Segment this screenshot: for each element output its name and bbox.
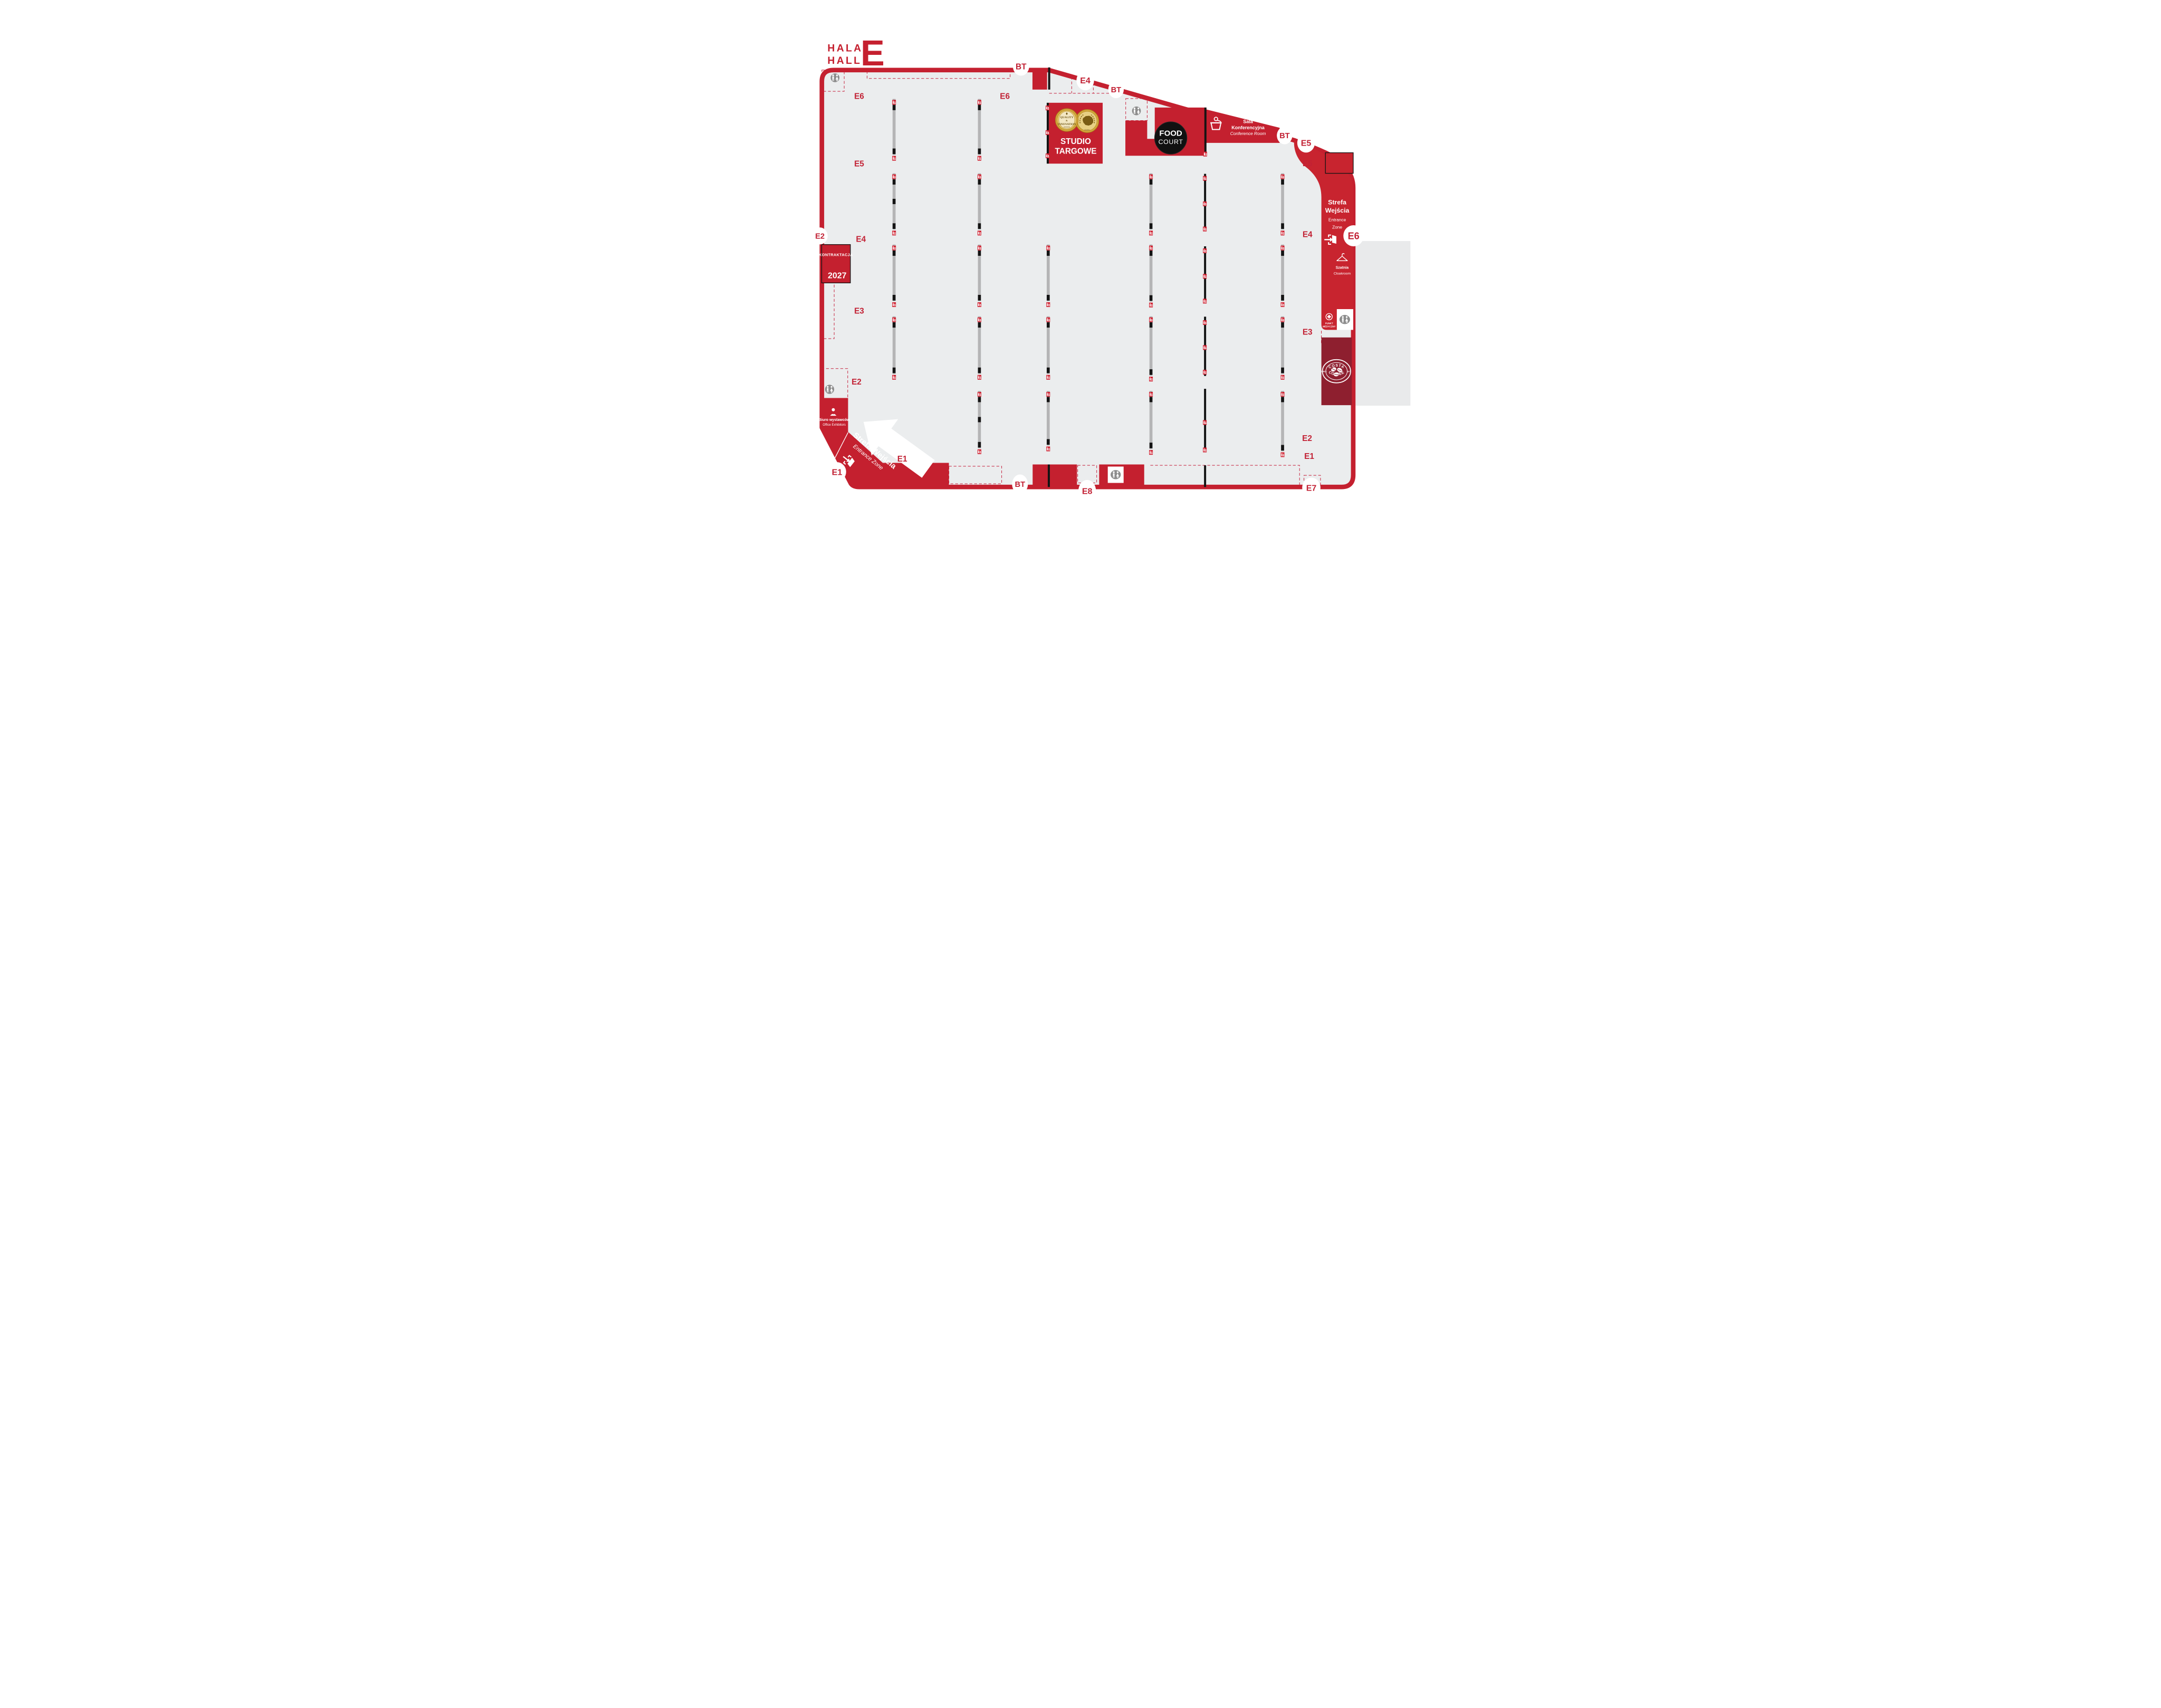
svg-text:BT: BT — [1016, 62, 1027, 71]
svg-text:1971: 1971 — [1347, 370, 1351, 372]
svg-text:INNOVATION: INNOVATION — [1058, 123, 1076, 126]
svg-text:MEDYCZNY: MEDYCZNY — [1323, 325, 1335, 328]
wall-line — [1204, 465, 1206, 487]
svg-text:Entrance: Entrance — [1328, 217, 1346, 223]
svg-text:Office Exhibitors: Office Exhibitors — [823, 424, 846, 427]
booth-wall-segment — [978, 105, 981, 110]
booth-wall-segment — [893, 322, 896, 328]
fire-extinguisher-icon — [1203, 320, 1207, 325]
entrance-right-outlined-room — [1325, 153, 1353, 174]
fire-extinguisher-icon — [1281, 452, 1285, 457]
studio-label-2: TARGOWE — [1055, 147, 1097, 156]
booth-wall-segment — [893, 295, 896, 301]
fire-extinguisher-icon — [892, 156, 896, 161]
fire-extinguisher-icon — [1281, 375, 1285, 380]
svg-text:E7: E7 — [1306, 484, 1317, 493]
toilets-bottom-left — [825, 385, 834, 394]
svg-text:Cloakroom: Cloakroom — [1334, 272, 1351, 275]
svg-text:SINCE: SINCE — [1321, 370, 1327, 372]
fire-extinguisher-icon — [1149, 175, 1153, 179]
gate-badge-bt-right[interactable]: BT — [1277, 127, 1292, 144]
booth-wall-segment — [893, 223, 896, 229]
fire-extinguisher-icon — [1281, 318, 1285, 322]
fire-extinguisher-icon — [1203, 248, 1207, 253]
wall-line — [1204, 108, 1207, 156]
food-court-content: FOOD COURT — [1154, 122, 1187, 154]
booth-wall-segment — [978, 417, 981, 422]
svg-text:BT: BT — [1279, 132, 1290, 140]
fire-extinguisher-icon — [1203, 274, 1207, 279]
fire-extinguisher-icon — [1203, 370, 1207, 375]
booth-wall-segment — [1281, 322, 1284, 328]
fire-extinguisher-icon — [978, 175, 981, 179]
booth-wall-segment — [1047, 368, 1050, 373]
booth-wall-segment — [1281, 368, 1284, 373]
booth-wall-segment — [1150, 443, 1153, 448]
fire-extinguisher-icon — [1046, 105, 1049, 110]
gate-badge-e5[interactable]: E5 — [1297, 133, 1315, 153]
toilets-right — [1340, 315, 1350, 324]
fire-extinguisher-icon — [978, 100, 981, 104]
fire-extinguisher-icon — [1203, 201, 1207, 206]
svg-text:E8: E8 — [1082, 487, 1093, 496]
fire-extinguisher-icon — [978, 302, 981, 307]
fire-extinguisher-icon — [1149, 231, 1153, 235]
fire-extinguisher-icon — [892, 246, 896, 251]
fire-extinguisher-icon — [978, 392, 981, 397]
booth-wall-segment — [978, 322, 981, 328]
booth-wall-segment — [978, 368, 981, 373]
fire-extinguisher-icon — [892, 302, 896, 307]
fire-extinguisher-icon — [1149, 318, 1153, 322]
svg-text:Conference Room: Conference Room — [1230, 131, 1266, 136]
booth-wall-segment — [1281, 223, 1284, 229]
fire-extinguisher-icon — [978, 156, 981, 161]
booth-wall-segment — [1150, 322, 1153, 328]
svg-text:HALA: HALA — [827, 42, 863, 54]
booth-wall-segment — [1281, 179, 1284, 185]
gate-badge-e7[interactable]: E7 — [1302, 478, 1321, 498]
fire-extinguisher-icon — [1046, 130, 1049, 135]
svg-text:BT: BT — [1111, 86, 1122, 94]
svg-text:E2: E2 — [1302, 434, 1312, 443]
booth-wall-segment — [1281, 397, 1284, 402]
booth-wall-segment — [1281, 251, 1284, 256]
gate-badge-e1[interactable]: E1 — [828, 462, 846, 482]
fire-extinguisher-icon — [1046, 392, 1050, 397]
svg-text:Biuro wystawców: Biuro wystawców — [819, 418, 850, 422]
fire-extinguisher-icon — [1149, 246, 1153, 251]
fire-extinguisher-icon — [1203, 227, 1207, 232]
svg-text:E3: E3 — [854, 306, 864, 315]
booth-wall-segment — [1047, 251, 1050, 256]
svg-text:E4: E4 — [856, 235, 866, 244]
fire-extinguisher-icon — [1046, 375, 1050, 380]
medal-quality-icon: QUALITY & INNOVATION — [1055, 109, 1078, 131]
booth-wall-segment — [1150, 179, 1153, 185]
svg-text:KONTRAKTACJA: KONTRAKTACJA — [819, 252, 853, 257]
row-labels-middle: E6 — [1000, 92, 1010, 101]
fire-extinguisher-icon — [1203, 447, 1207, 452]
studio-label-1: STUDIO — [1060, 137, 1091, 146]
fire-extinguisher-icon — [892, 375, 896, 380]
top-notch-block — [1032, 69, 1047, 89]
gate-badge-e6[interactable]: E6 — [1343, 225, 1364, 246]
booth-wall-segment — [893, 199, 896, 204]
gate-badge-e2[interactable]: E2 — [812, 227, 827, 244]
svg-text:Zone: Zone — [1332, 225, 1342, 230]
fire-extinguisher-icon — [1203, 176, 1207, 181]
fire-extinguisher-icon — [1149, 392, 1153, 397]
wall-line — [1048, 68, 1050, 90]
fire-extinguisher-icon — [1281, 392, 1285, 397]
fire-extinguisher-icon — [978, 246, 981, 251]
svg-text:E2: E2 — [815, 233, 825, 241]
svg-text:FOOD: FOOD — [1159, 129, 1182, 138]
booth-wall-segment — [1047, 322, 1050, 328]
svg-text:E1: E1 — [1304, 452, 1314, 461]
svg-text:BT: BT — [1015, 481, 1026, 489]
toilets-top-left — [830, 73, 839, 82]
svg-text:&: & — [1066, 119, 1068, 122]
booth-wall-segment — [1150, 397, 1153, 402]
fire-extinguisher-icon — [1203, 152, 1207, 157]
fire-extinguisher-icon — [892, 175, 896, 179]
fire-extinguisher-icon — [1149, 450, 1153, 455]
fire-extinguisher-icon — [1203, 345, 1207, 350]
svg-text:E6: E6 — [854, 92, 864, 101]
booth-wall-segment — [978, 397, 981, 402]
fire-extinguisher-icon — [978, 231, 981, 235]
booth-wall-segment — [1281, 295, 1284, 301]
bottom-service-block-left — [1032, 464, 1077, 487]
fire-extinguisher-icon — [1281, 175, 1285, 179]
fire-extinguisher-icon — [978, 375, 981, 380]
outside-area-block — [1355, 241, 1410, 406]
toilets-food-court — [1132, 107, 1141, 116]
gate-badge-e8[interactable]: E8 — [1078, 480, 1096, 502]
hall-map: HALA HALL E E6 E5 E4 E3 E2 E1 E6 E5 E4 E… — [720, 0, 1441, 570]
fire-extinguisher-icon — [892, 231, 896, 235]
booth-wall-segment — [978, 149, 981, 155]
map-title: HALA HALL E — [827, 33, 884, 73]
wall-line — [1048, 464, 1050, 487]
fire-extinguisher-icon — [1046, 446, 1050, 451]
svg-text:Sala: Sala — [1243, 119, 1254, 124]
booth-wall-segment — [893, 251, 896, 256]
gate-badge-e4[interactable]: E4 — [1076, 71, 1094, 90]
fire-extinguisher-icon — [978, 449, 981, 454]
gate-badge-bt-bottom[interactable]: BT — [1012, 475, 1028, 494]
fire-extinguisher-icon — [892, 318, 896, 322]
booth-wall-segment — [1150, 223, 1153, 229]
booth-wall-segment — [978, 179, 981, 185]
svg-text:EXPO: EXPO — [1084, 129, 1090, 131]
fire-extinguisher-icon — [1281, 246, 1285, 251]
svg-text:HALL: HALL — [827, 55, 862, 66]
fire-extinguisher-icon — [978, 318, 981, 322]
booth-wall-segment — [893, 105, 896, 110]
booth-wall-segment — [1281, 445, 1284, 450]
svg-text:E3: E3 — [1303, 328, 1313, 337]
booth-wall-segment — [978, 295, 981, 301]
booth-wall-segment — [978, 251, 981, 256]
booth-wall-segment — [978, 223, 981, 229]
medal-poland-icon: EXPO — [1076, 110, 1099, 133]
fire-extinguisher-icon — [1046, 153, 1049, 158]
booth-wall-segment — [1150, 295, 1153, 301]
booth-wall-segment — [1150, 251, 1153, 256]
svg-text:E4: E4 — [1080, 76, 1091, 85]
fire-extinguisher-icon — [1046, 318, 1050, 322]
fire-extinguisher-icon — [1203, 420, 1207, 425]
svg-text:COURT: COURT — [1159, 138, 1183, 146]
booth-wall-segment — [1047, 397, 1050, 402]
svg-text:QUALITY: QUALITY — [1060, 116, 1074, 119]
svg-text:Wejścia: Wejścia — [1325, 207, 1350, 214]
booth-wall-segment — [1047, 295, 1050, 301]
svg-text:Strefa: Strefa — [1328, 199, 1346, 206]
booth-wall-segment — [1047, 439, 1050, 445]
svg-text:E4: E4 — [1303, 230, 1313, 239]
svg-text:Szatnia: Szatnia — [1336, 266, 1349, 270]
fire-extinguisher-icon — [1046, 302, 1050, 307]
booth-wall-segment — [893, 368, 896, 373]
booth-wall-segment — [893, 179, 896, 185]
booth-wall-segment — [1150, 369, 1153, 375]
svg-text:Konferencyjna: Konferencyjna — [1231, 125, 1265, 130]
booth-wall-segment — [893, 149, 896, 155]
svg-text:E6: E6 — [1348, 231, 1360, 241]
svg-text:E1: E1 — [832, 468, 843, 477]
fire-extinguisher-icon — [1203, 299, 1207, 303]
svg-text:E1: E1 — [897, 455, 907, 464]
toilets-bottom-center — [1111, 470, 1121, 479]
gate-badge-bt-top[interactable]: BT — [1013, 57, 1029, 76]
svg-text:E5: E5 — [1301, 139, 1312, 148]
svg-text:E6: E6 — [1000, 92, 1010, 101]
svg-text:E5: E5 — [1303, 159, 1313, 168]
fire-extinguisher-icon — [892, 100, 896, 104]
svg-text:E5: E5 — [854, 160, 864, 169]
fire-extinguisher-icon — [1149, 303, 1153, 308]
svg-text:E2: E2 — [852, 378, 862, 387]
hall-letter: E — [860, 33, 885, 73]
fire-extinguisher-icon — [1281, 231, 1285, 235]
fire-extinguisher-icon — [1281, 302, 1285, 307]
fire-extinguisher-icon — [1046, 246, 1050, 251]
svg-text:PUNKT: PUNKT — [1325, 322, 1333, 324]
hall-map-page: HALA HALL E E6 E5 E4 E3 E2 E1 E6 E5 E4 E… — [720, 0, 1441, 570]
wall-line — [1204, 389, 1206, 449]
svg-text:2027: 2027 — [828, 272, 847, 281]
fire-extinguisher-icon — [1149, 377, 1153, 381]
booth-wall-segment — [978, 442, 981, 448]
gate-badge-bt-slope[interactable]: BT — [1108, 81, 1124, 98]
